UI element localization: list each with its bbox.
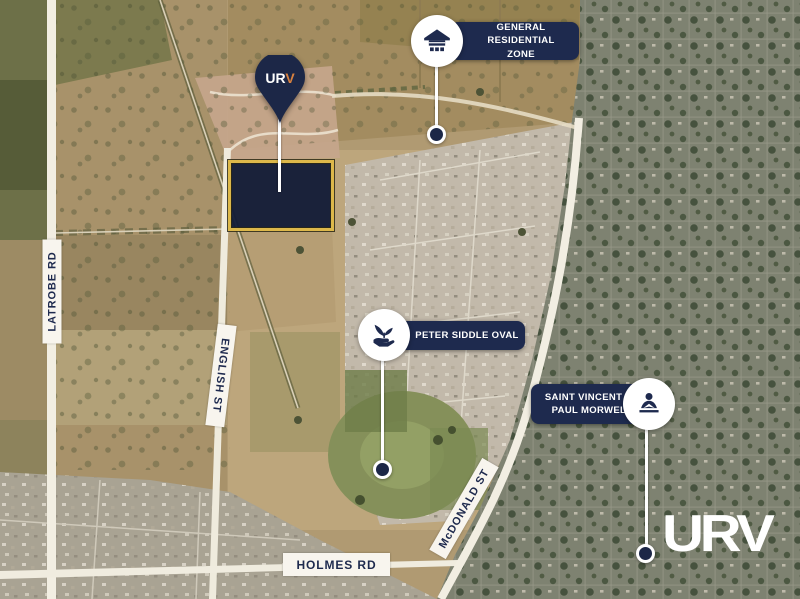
map-dot-saint-vincent: [636, 544, 655, 563]
marker-saint-vincent-de-paul: [623, 378, 675, 430]
road-label-latrobe-rd: LATROBE RD: [43, 240, 62, 344]
urv-logo: URV: [662, 504, 770, 564]
plant-in-hand-icon: [370, 321, 398, 349]
aerial-map: URV GENERAL RESIDENTIAL ZONE PETER SIDDL…: [0, 0, 800, 599]
house-icon: [423, 27, 451, 55]
road-name: LATROBE RD: [46, 251, 58, 331]
road-label-holmes-rd: HOLMES RD: [283, 553, 390, 576]
urv-site-pin: URV: [253, 55, 307, 125]
label-general-residential-zone: GENERAL RESIDENTIAL ZONE: [450, 22, 579, 60]
leader-line-site-pin: [278, 118, 281, 192]
label-peter-siddle-oval: PETER SIDDLE OVAL: [396, 321, 525, 350]
leader-line-peter-siddle-oval: [381, 358, 384, 468]
label-line: ZONE: [507, 48, 535, 61]
leader-line-saint-vincent: [645, 428, 648, 550]
map-dot-peter-siddle-oval: [373, 460, 392, 479]
leader-line-general-residential-zone: [435, 66, 438, 132]
highlighted-land-parcel: [228, 160, 334, 231]
person-reading-icon: [635, 390, 663, 418]
map-dot-general-residential-zone: [427, 125, 446, 144]
road-name: HOLMES RD: [296, 558, 376, 572]
label-line: GENERAL RESIDENTIAL: [463, 21, 579, 48]
label-line: PAUL MORWELL: [552, 404, 633, 417]
label-line: PETER SIDDLE OVAL: [415, 329, 518, 342]
marker-peter-siddle-oval: [358, 309, 410, 361]
marker-general-residential-zone: [411, 15, 463, 67]
pin-logo: URV: [265, 70, 295, 86]
